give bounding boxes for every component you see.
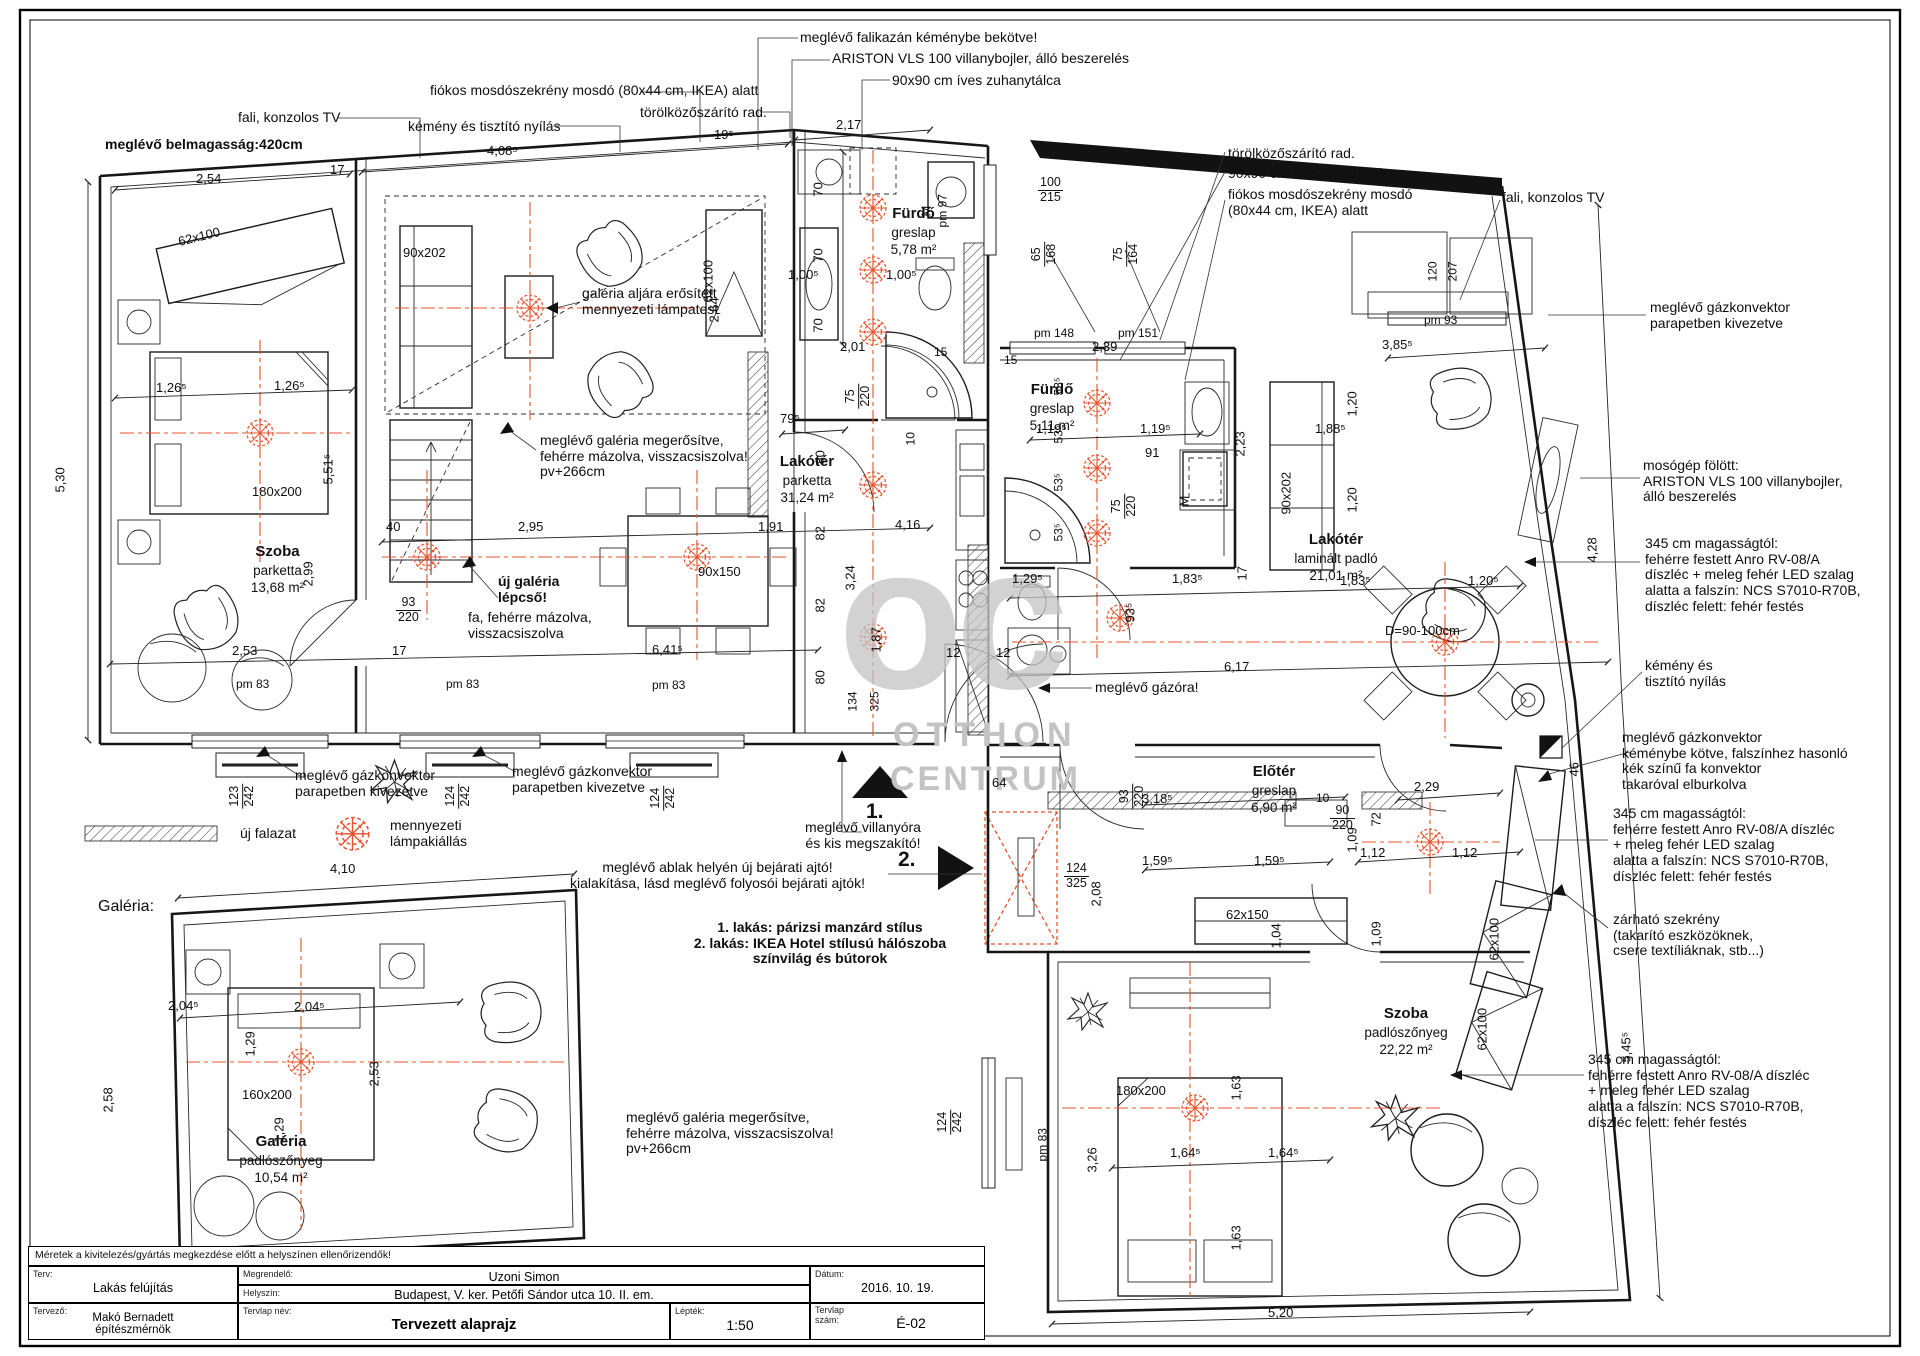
frac-top: 93 [1118, 789, 1132, 803]
dim-1-29-5: 1,29⁵ [1012, 572, 1043, 587]
furniture-kerek-asztal: D=90-100cm [1385, 624, 1460, 639]
dim-70b: 70 [811, 248, 826, 262]
callout-r-zuhanytalca: 90x90 cm íves zuhanytálca [1228, 166, 1397, 182]
dim-2-04a: 2,04⁵ [168, 999, 199, 1014]
dim-1-09b: 1,09 [1369, 921, 1384, 946]
furniture-agy3: 160x200 [242, 1088, 292, 1103]
furniture-gardrob4: 62x100 [1475, 1008, 1490, 1051]
titleblock-leptek-value: 1:50 [671, 1317, 809, 1333]
dim-6-17: 6,17 [1224, 660, 1249, 675]
note-uj-galeria-bold: új galéria lépcső! [498, 574, 559, 605]
frac-bottom: 242 [458, 784, 473, 809]
frac-top: 124 [444, 786, 458, 807]
chimney-marker [1540, 736, 1562, 758]
frac-top: 93 [401, 596, 415, 610]
note-gazkonvektor-1: meglévő gázkonvektor parapetben kivezetv… [295, 768, 435, 799]
dim-17c: 17 [1235, 566, 1250, 580]
dim-2-54: 2,54 [196, 172, 221, 187]
note-gazkonvektor-2: meglévő gázkonvektor parapetben kivezetv… [512, 764, 652, 795]
callout-r-tv: fali, konzolos TV [1502, 190, 1604, 206]
room-floor: padlószőnyeg [205, 1152, 357, 1170]
room-lakoter1: Lakótér parketta 31,24 m² [748, 452, 866, 507]
dim-2-64: 2,64 [707, 297, 722, 322]
dim-1-20-5: 1,20⁵ [1468, 574, 1499, 589]
frac-top: 124 [649, 788, 663, 809]
dim-1-63a: 1,63 [1229, 1075, 1244, 1100]
dim-pm148: pm 148 [1034, 327, 1074, 340]
dim-5-45: 5,45⁵ [1619, 1032, 1634, 1063]
dim-70c: 70 [811, 318, 826, 332]
drawing-sheet: oc OTTHON CENTRUM meglévő falikazán kémé… [0, 0, 1920, 1356]
callout-zuhanytalca: 90x90 cm íves zuhanytálca [892, 73, 1061, 89]
dim-15b: 15 [1004, 354, 1017, 367]
furniture-asztal: 90x150 [698, 565, 741, 580]
dim-1-59b: 1,59⁵ [1254, 854, 1285, 869]
frac-top: 75 [1112, 247, 1126, 261]
dim-1-00a: 1,00⁵ [788, 268, 819, 283]
room-eloter: Előtér greslap 6,90 m² [1218, 762, 1330, 817]
room-floor: laminált padló [1262, 550, 1410, 568]
bedroom1-furniture [118, 208, 416, 802]
new-wall-hatch-5 [1362, 792, 1422, 809]
dim-2-53: 2,53 [232, 644, 257, 659]
legend-symbols [85, 818, 369, 851]
titleblock-terv-label: Terv: [33, 1269, 53, 1279]
marker-2: 2. [898, 848, 916, 872]
frac-top: 90 [1335, 804, 1349, 818]
frac-bottom: 242 [950, 1110, 965, 1135]
dim-12a: 12 [946, 646, 960, 661]
dim-1-19b: 1,19⁵ [1036, 422, 1067, 437]
dim-123-242: 123242 [228, 784, 257, 809]
dim-124-325: 124325 [1064, 862, 1089, 891]
room-area: 22,22 m² [1330, 1041, 1482, 1059]
dim-1-64b: 1,64⁵ [1268, 1146, 1299, 1161]
note-galeria-megerositve: meglévő galéria megerősítve, fehérre máz… [540, 433, 748, 480]
dim-17a: 17 [330, 163, 344, 178]
furniture-cipos: 62x150 [1226, 908, 1269, 923]
furniture-kanape2: 90x202 [1279, 472, 1294, 515]
note-lampatest: galéria aljára erősített mennyezeti lámp… [582, 286, 718, 317]
callout-diszlec-3: 345 cm magasságtól: fehérre festett Anro… [1588, 1052, 1810, 1130]
dim-pm93: pm 93 [1424, 314, 1457, 327]
dim-19-5: 19⁵ [714, 128, 734, 143]
dim-64: 64 [992, 776, 1006, 791]
frac-top: 100 [1040, 176, 1061, 190]
dim-2-01: 2,01 [840, 340, 865, 355]
titleblock-tervezo: Tervező: Makó Bernadett építészmérnök [28, 1303, 238, 1340]
dim-124-242b: 124242 [649, 786, 678, 811]
titleblock-megrendelo-value: Uzoni Simon [239, 1270, 809, 1284]
dim-1-26a: 1,26⁵ [156, 381, 187, 396]
dim-40: 40 [386, 520, 400, 535]
dim-1-29b: 1,29 [272, 1117, 287, 1142]
dim-1-12b: 1,12 [1452, 846, 1477, 861]
frac-bottom: 242 [663, 786, 678, 811]
callout-r-torolkozo: törölközőszárító rad. [1228, 146, 1355, 162]
dim-2-99: 2,99 [301, 561, 316, 586]
dim-46: 46 [1567, 762, 1582, 776]
room-area: 31,24 m² [748, 489, 866, 507]
dim-93-5: 93⁵ [1123, 603, 1138, 623]
dim-75-220b: 75220 [1110, 494, 1139, 519]
dim-3-26: 3,26 [1085, 1147, 1100, 1172]
frac-bottom: 220 [1132, 784, 1147, 809]
room-szoba2: Szoba padlószőnyeg 22,22 m² [1330, 1004, 1482, 1059]
dim-75-164: 75164 [1112, 242, 1141, 267]
dim-53-d: 53⁵ [1053, 523, 1066, 541]
watermark-line1: OTTHON [893, 716, 1079, 755]
frac-top: 65 [1030, 247, 1044, 261]
gallery-room-furniture [385, 196, 796, 654]
room-floor: padlószőnyeg [1330, 1024, 1482, 1042]
dim-5-20: 5,20 [1268, 1306, 1293, 1321]
dim-4-28: 4,28 [1585, 537, 1600, 562]
furniture-mosogep1: M [919, 206, 934, 217]
frac-top: 123 [228, 786, 242, 807]
callout-diszlec-2: 345 cm magasságtól: fehérre festett Anro… [1613, 806, 1835, 884]
dim-53-a: 53⁵ [1053, 377, 1066, 395]
note-uj-galeria: fa, fehérre mázolva, visszacsiszolva [468, 610, 592, 641]
dim-pm83-b: pm 83 [446, 678, 479, 691]
titleblock-leptek: Lépték: 1:50 [670, 1303, 810, 1340]
room-lakoter2: Lakótér laminált padló 21,01 m² [1262, 530, 1410, 585]
dim-75-220a: 75220 [844, 384, 873, 409]
dim-1-83a: 1,83⁵ [1172, 572, 1203, 587]
dim-82a: 82 [813, 526, 828, 540]
dim-5-30: 5,30 [53, 467, 68, 492]
dim-2-08: 2,08 [1089, 881, 1104, 906]
dim-pm83-d: pm 83 [1037, 1128, 1050, 1161]
titleblock-megrendelo: Megrendelő: Uzoni Simon [238, 1266, 810, 1285]
apartment2-walls [982, 140, 1630, 1312]
titleblock-note-strip: Méretek a kivitelezés/gyártás megkezdése… [28, 1246, 985, 1266]
titleblock-tervezo-value: Makó Bernadett építészmérnök [29, 1312, 237, 1336]
dim-1-19a: 1,19⁵ [1140, 422, 1171, 437]
dim-4-10: 4,10 [330, 862, 355, 877]
note-ellenorzes: Méretek a kivitelezés/gyártás megkezdése… [35, 1250, 391, 1262]
room-area: 10,54 m² [205, 1169, 357, 1187]
dim-100-215: 100215 [1038, 176, 1063, 205]
new-entry-door-2 [985, 812, 1057, 944]
frac-top: 124 [1066, 862, 1087, 876]
note-uj-bejarat: meglévő ablak helyén új bejárati ajtó! k… [545, 860, 890, 891]
furniture-gardrob2: 62x100 [701, 260, 716, 303]
titleblock-tervlapszam-label: Tervlap szám: [815, 1306, 844, 1326]
dim-91: 91 [1145, 446, 1159, 461]
dim-72: 72 [1369, 812, 1384, 826]
dim-4-16: 4,16 [895, 518, 920, 533]
callout-ariston: ARISTON VLS 100 villanybojler, álló besz… [832, 51, 1129, 67]
dim-2-29: 2,29 [1414, 780, 1439, 795]
frac-bottom: 220 [396, 610, 421, 625]
stairs [390, 420, 472, 582]
note-stilusok: 1. lakás: párizsi manzárd stílus 2. laká… [655, 920, 985, 967]
room-area: 5,78 m² [866, 241, 961, 259]
frac-bottom: 215 [1038, 190, 1063, 205]
room-floor: greslap [1002, 400, 1102, 418]
callout-falikazan: meglévő falikazán kéménybe bekötve! [800, 30, 1037, 46]
dim-2-53b: 2,53 [367, 1061, 382, 1086]
dim-17b: 17 [392, 644, 406, 659]
dim-2-58: 2,58 [101, 1087, 116, 1112]
dim-80a: 80 [813, 450, 828, 464]
titleblock-tervlapnev: Tervlap név: Tervezett alaprajz [238, 1303, 670, 1340]
dim-2-39: 2,39 [1092, 340, 1117, 355]
dim-93-220: 93220 [396, 596, 421, 625]
dim-10a: 10 [905, 432, 918, 445]
dim-3-85: 3,85⁵ [1382, 338, 1413, 353]
frac-top: 124 [936, 1112, 950, 1133]
dim-1-59a: 1,59⁵ [1142, 854, 1173, 869]
callout-kemeny: kémény és tisztító nyílás [408, 119, 561, 135]
callout-tv: fali, konzolos TV [238, 110, 340, 126]
dim-79-5: 79⁵ [780, 412, 800, 427]
dim-65-168: 65168 [1030, 242, 1059, 267]
callout-gazkonvektor-parapet: meglévő gázkonvektor parapetben kivezetv… [1650, 300, 1790, 331]
dim-12b: 12 [996, 646, 1010, 661]
dim-15a: 15 [934, 346, 947, 359]
dim-1-64a: 1,64⁵ [1170, 1146, 1201, 1161]
frac-bottom: 168 [1044, 242, 1059, 267]
room-name: Előtér [1218, 762, 1330, 782]
dim-70a: 70 [811, 182, 826, 196]
dim-1-00b: 1,00⁵ [886, 268, 917, 283]
titleblock-leptek-label: Lépték: [675, 1306, 705, 1316]
dim-5-51: 5,51⁵ [321, 454, 336, 485]
dim-82b: 82 [813, 598, 828, 612]
furniture-agy1: 180x200 [252, 485, 302, 500]
dim-1-20b: 1,20 [1345, 487, 1360, 512]
marker-1: 1. [866, 800, 884, 824]
callout-mosdoszekreny: fiókos mosdószekrény mosdó (80x44 cm, IK… [430, 83, 758, 99]
titleblock-helyszin-value: Budapest, V. ker. Petőfi Sándor utca 10.… [239, 1288, 809, 1302]
titleblock-tervlapnev-value: Tervezett alaprajz [239, 1316, 669, 1333]
dim-2-04b: 2,04⁵ [294, 1000, 325, 1015]
dim-134: 134 [847, 691, 860, 711]
titleblock-datum: Dátum: 2016. 10. 19. [810, 1266, 985, 1303]
room-floor: greslap [1218, 782, 1330, 800]
furniture-gardrob3: 62x100 [1487, 918, 1502, 961]
frac-bottom: 220 [1124, 494, 1139, 519]
dim-1-91: 1,91 [758, 520, 783, 535]
frac-bottom: 164 [1126, 242, 1141, 267]
furniture-agy2: 180x200 [1116, 1084, 1166, 1099]
dim-1-20a: 1,20 [1345, 391, 1360, 416]
dim-120: 120 [1427, 261, 1440, 281]
callout-kemeny-tisztito: kémény és tisztító nyílás [1645, 658, 1726, 689]
titleblock-terv-value: Lakás felújítás [29, 1281, 237, 1295]
dim-1-63b: 1,63 [1229, 1225, 1244, 1250]
frac-bottom: 242 [242, 784, 257, 809]
room-name: Szoba [230, 542, 325, 562]
titleblock-datum-label: Dátum: [815, 1269, 844, 1279]
legend-lampa: mennyezeti lámpakiállás [390, 818, 467, 849]
galeria-title: Galéria: [98, 898, 154, 916]
titleblock-tervlapnev-label: Tervlap név: [243, 1306, 292, 1316]
dim-1-29a: 1,29 [243, 1031, 258, 1056]
note-galeria-megerositve-2: meglévő galéria megerősítve, fehérre máz… [626, 1110, 834, 1157]
room-area: 6,90 m² [1218, 799, 1330, 817]
new-wall-hatch-2 [964, 243, 984, 363]
legend-uj-falazat: új falazat [240, 826, 296, 842]
room-area: 21,01 m² [1262, 567, 1410, 585]
dim-325: 325 [869, 691, 882, 711]
dim-1-26b: 1,26⁵ [274, 379, 305, 394]
titleblock-tervlapszam-value: É-02 [851, 1315, 971, 1331]
dim-80b: 80 [813, 670, 828, 684]
dim-1-12a: 1,12 [1360, 846, 1385, 861]
frac-bottom: 220 [858, 384, 873, 409]
dim-6-41: 6,41⁵ [652, 643, 683, 658]
dim-4-08: 4,08⁵ [487, 144, 518, 159]
room-floor: parketta [748, 472, 866, 490]
callout-gazkonvektor-kemeny: meglévő gázkonvektor kéménybe kötve, fal… [1622, 730, 1848, 793]
furniture-kanape: 90x202 [403, 246, 446, 261]
dim-1-04: 1,04 [1269, 923, 1284, 948]
titleblock-tervlapszam: Tervlap szám: É-02 [810, 1303, 985, 1340]
titleblock-datum-value: 2016. 10. 19. [811, 1281, 984, 1295]
callout-torolkozo: törölközőszárító rad. [640, 105, 767, 121]
furniture-mosogep2: M [1177, 496, 1192, 507]
titleblock-terv: Terv: Lakás felújítás [28, 1266, 238, 1303]
callout-szekreny: zárható szekrény (takarító eszközöknek, … [1613, 912, 1764, 959]
dim-124-242c: 124242 [936, 1110, 965, 1135]
dim-2-23: 2,23 [1233, 431, 1248, 456]
dim-53-c: 53⁵ [1053, 473, 1066, 491]
dim-pm151: pm 151 [1118, 327, 1158, 340]
dim-pm97: pm 97 [937, 194, 950, 227]
dim-1-83b: 1,83⁵ [1340, 574, 1371, 589]
dim-pm83-a: pm 83 [236, 678, 269, 691]
room-name: Szoba [1330, 1004, 1482, 1024]
callout-r-mosdoszekreny: fiókos mosdószekrény mosdó (80x44 cm, IK… [1228, 187, 1412, 218]
dim-124-242a: 124242 [444, 784, 473, 809]
watermark-line2: CENTRUM [890, 760, 1081, 799]
frac-top: 75 [844, 389, 858, 403]
room-name: Lakótér [1262, 530, 1410, 550]
frac-top: 75 [1110, 499, 1124, 513]
dim-93-220b: 93220 [1118, 784, 1147, 809]
dim-10b: 10 [1316, 792, 1329, 805]
dim-207: 207 [1447, 261, 1460, 281]
dim-1-09a: 1,09 [1345, 827, 1360, 852]
apartment1-windows [192, 735, 744, 777]
titleblock-helyszin: Helyszín: Budapest, V. ker. Petőfi Sándo… [238, 1285, 810, 1303]
note-gazora: meglévő gázóra! [1095, 680, 1199, 696]
note-villanyora: meglévő villanyóra és kis megszakító! [788, 820, 938, 851]
dim-2-17: 2,17 [836, 118, 861, 133]
room-name: Lakótér [748, 452, 866, 472]
callout-mosogep: mosógép fölött: ARISTON VLS 100 villanyb… [1643, 458, 1843, 505]
dim-1-87: 1,87 [869, 627, 884, 652]
dim-2-95: 2,95 [518, 520, 543, 535]
frac-bottom: 325 [1064, 876, 1089, 891]
dim-1-88: 1,88⁵ [1315, 422, 1346, 437]
dim-pm83-c: pm 83 [652, 679, 685, 692]
dim-3-24: 3,24 [843, 565, 858, 590]
callout-diszlec-1: 345 cm magasságtól: fehérre festett Anro… [1645, 536, 1861, 614]
note-belmagassag: meglévő belmagasság:420cm [105, 137, 303, 153]
